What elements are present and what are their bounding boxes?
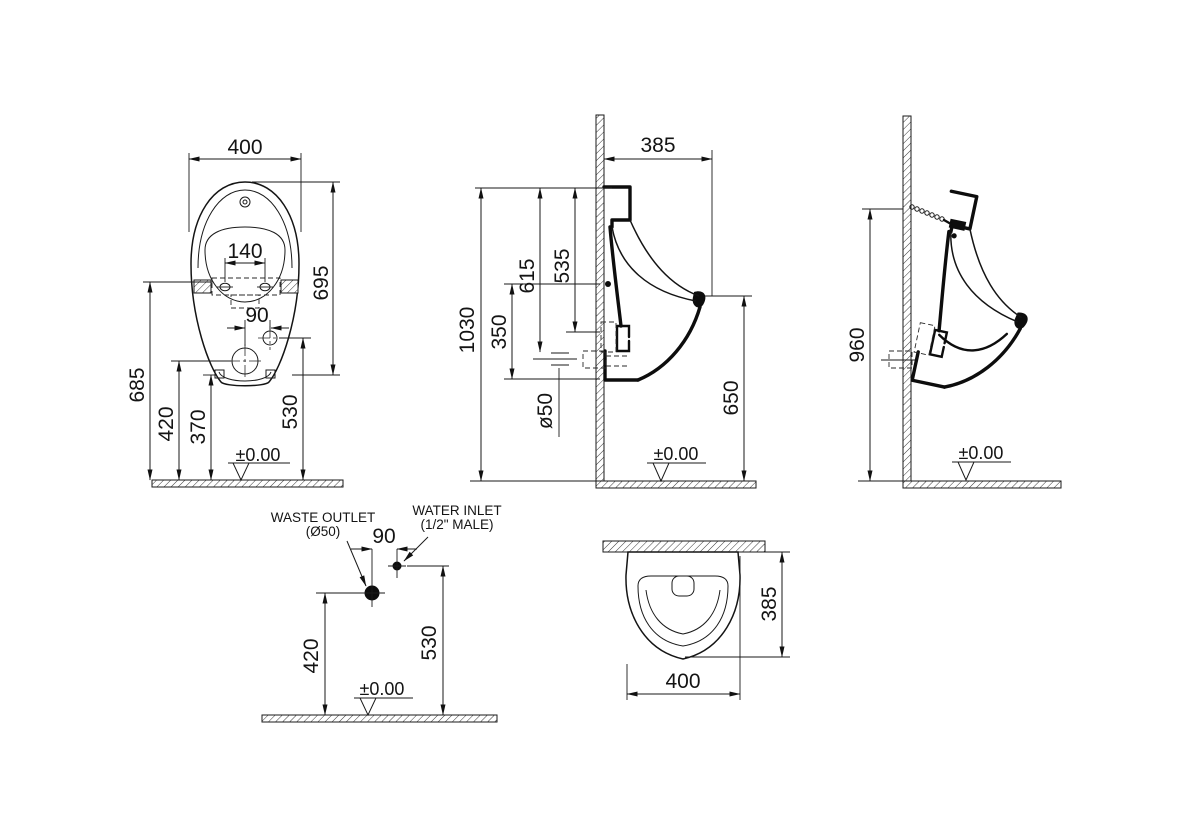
outlet-spud-profile — [617, 326, 629, 351]
dim-label: 420 — [155, 406, 178, 441]
dim-label: 90 — [372, 525, 395, 548]
wall-hatch — [903, 116, 911, 481]
dim-label: 960 — [846, 327, 869, 362]
water-inlet-size-label: (1/2" MALE) — [420, 517, 493, 532]
dim-label: 350 — [488, 314, 511, 349]
dim-label: 400 — [665, 670, 700, 693]
installation-view: 960 ±0.00 — [846, 116, 1061, 488]
connections-view: WASTE OUTLET (Ø50) WATER INLET (1/2" MAL… — [262, 503, 502, 722]
datum-connections: ±0.00 — [354, 679, 413, 715]
dim-label: 650 — [720, 380, 743, 415]
outlet-spud-profile — [930, 330, 947, 357]
dim-label: 385 — [640, 134, 675, 157]
chain-link — [930, 213, 934, 217]
datum-triangle — [360, 698, 376, 715]
hanging-chain — [910, 205, 951, 224]
dim-mounting-height: 685 — [126, 282, 213, 480]
underside-profile — [944, 316, 1020, 400]
dim-connection-offset: 90 — [351, 525, 417, 549]
waste-outlet-size-label: (Ø50) — [306, 524, 341, 539]
urinal-plan-outline — [626, 552, 740, 659]
dim-rim-height: 650 — [705, 296, 752, 481]
datum-front: ±0.00 — [228, 445, 290, 480]
dim-pipe-diameter: ø50 — [534, 368, 559, 437]
dim-label: 615 — [516, 258, 539, 293]
chain-link — [935, 215, 939, 219]
dim-inlet-height-front: 530 — [279, 338, 311, 480]
floor-hatch — [152, 480, 343, 487]
dim-label: 420 — [300, 638, 323, 673]
back-profile — [928, 232, 959, 331]
chain-link — [925, 211, 929, 215]
hanger-screw — [951, 233, 957, 239]
front-view: 400 140 90 695 685 — [126, 136, 343, 487]
bracket-hatch-right — [281, 280, 298, 293]
inlet-spud-profile — [604, 187, 630, 227]
dim-label: 370 — [187, 409, 210, 444]
bottom-profile — [605, 351, 638, 380]
dim-depth: 385 — [604, 134, 712, 296]
top-screw-hole-inner — [243, 200, 247, 204]
wall-hatch — [596, 115, 604, 481]
bottom-profile — [912, 352, 950, 387]
dim-label: 695 — [310, 265, 333, 300]
dim-top-to-spud: 535 — [551, 188, 600, 332]
dim-label: 530 — [418, 625, 441, 660]
waste-outlet-leader — [347, 541, 366, 586]
dim-inlet-height-conn: 530 — [407, 566, 449, 715]
datum-label: ±0.00 — [360, 679, 405, 699]
spud-outline — [672, 576, 694, 596]
datum-triangle — [233, 463, 249, 480]
datum-triangle — [653, 463, 669, 481]
waste-outlet-label: WASTE OUTLET — [271, 510, 376, 525]
bowl-face-inner — [935, 232, 1033, 322]
urinal-installation-drawing: 400 140 90 695 685 — [0, 0, 1190, 840]
dim-label: 530 — [279, 394, 302, 429]
bowl-face-outer — [630, 220, 699, 296]
dim-label: 90 — [245, 304, 268, 327]
datum-installation: ±0.00 — [952, 443, 1011, 480]
dim-front-width: 400 — [189, 136, 301, 232]
dim-label: ø50 — [534, 393, 557, 429]
top-screw-hole — [240, 197, 250, 207]
datum-triangle — [958, 462, 974, 480]
plan-view: 385 400 — [603, 541, 790, 700]
dim-bottom-height: 370 — [187, 375, 217, 480]
chain-link — [915, 207, 919, 211]
floor-hatch — [596, 481, 756, 488]
bowl-rim-outline — [638, 576, 728, 646]
datum-label: ±0.00 — [959, 443, 1004, 463]
dim-label: 400 — [227, 136, 262, 159]
dim-label: 535 — [551, 248, 574, 283]
technical-drawing-page: 400 140 90 695 685 — [0, 0, 1190, 840]
bowl-inner-line — [646, 590, 720, 634]
datum-label: ±0.00 — [236, 445, 281, 465]
dim-inlet-offset-front: 90 — [227, 304, 289, 346]
dim-label: 140 — [227, 240, 262, 263]
datum-side: ±0.00 — [647, 444, 706, 481]
dim-plan-width: 400 — [627, 657, 740, 700]
dim-hanger-height: 960 — [846, 209, 903, 481]
dim-hole-spacing: 140 — [225, 240, 265, 282]
side-section-view: 385 1030 615 535 350 ø50 — [456, 115, 756, 488]
bowl-face-inner — [612, 227, 696, 301]
datum-label: ±0.00 — [654, 444, 699, 464]
floor-hatch — [262, 715, 497, 722]
bowl-water-line — [937, 320, 1007, 357]
dim-label: 1030 — [456, 307, 479, 354]
dim-label: 385 — [758, 586, 781, 621]
bowl-outline — [205, 227, 285, 302]
dim-outlet-height-conn: 420 — [300, 593, 362, 715]
wall-hatch — [603, 541, 765, 552]
dim-top-to-outlet: 615 — [516, 188, 540, 352]
floor-hatch — [903, 481, 1061, 488]
underside-profile — [638, 307, 700, 380]
dim-label: 685 — [126, 367, 149, 402]
tilted-urinal — [908, 191, 1050, 401]
water-inlet-label: WATER INLET — [412, 503, 501, 518]
chain-link — [920, 209, 924, 213]
wall-fixing-dot — [605, 281, 611, 287]
bowl-face-outer — [954, 229, 1037, 318]
